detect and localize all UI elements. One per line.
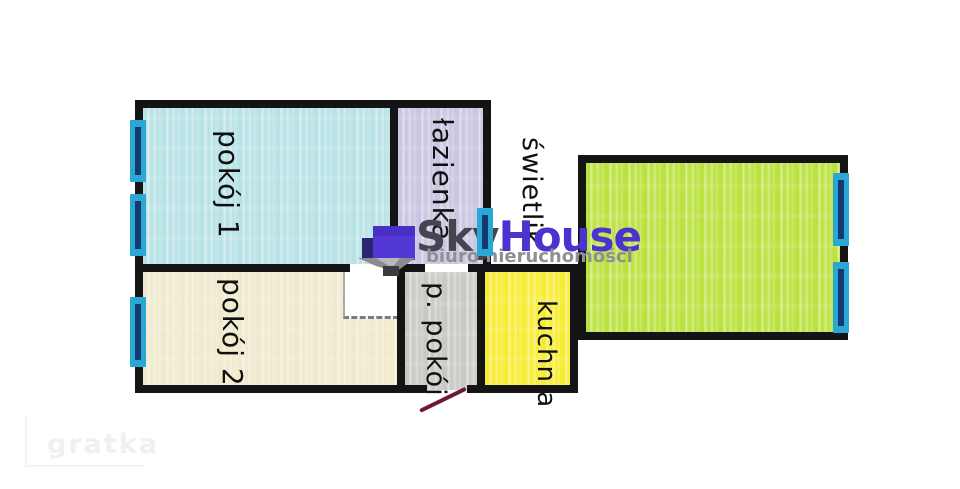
window-marker-lazienka (477, 208, 493, 256)
skyhouse-subtitle: biuro nieruchomości (426, 246, 633, 267)
wall-bottom-right (467, 385, 578, 393)
floor-plan: pokój 1 łazienka świetlik pokój 2 p. pok… (0, 0, 960, 489)
room-pokoj1 (143, 108, 390, 264)
wall-kuchnia-right (570, 264, 578, 393)
window-marker-pokoj1-lower (130, 194, 146, 256)
watermark-gratka: gratka (25, 415, 145, 467)
window-marker-pokoj1-upper (130, 120, 146, 182)
wall-top (135, 100, 491, 108)
window-marker-pokoj2 (130, 297, 146, 367)
wardrobe-alcove (343, 272, 399, 319)
room-label-pokoj2: pokój 2 (216, 278, 249, 387)
wall-mid-a (135, 264, 350, 272)
gratka-label: gratka (47, 429, 159, 460)
wall-bottom-left (135, 385, 427, 393)
room-label-pokoj1: pokój 1 (212, 130, 245, 239)
wall-pokoj2-ppokoj (397, 268, 405, 385)
wall-ppokoj-kuchnia (477, 272, 485, 385)
room-label-ppokoj: p. pokój (420, 282, 451, 397)
skyhouse-house-icon (356, 218, 418, 278)
window-marker-pokoj3-upper (833, 173, 849, 246)
window-marker-pokoj3-lower (833, 262, 849, 333)
